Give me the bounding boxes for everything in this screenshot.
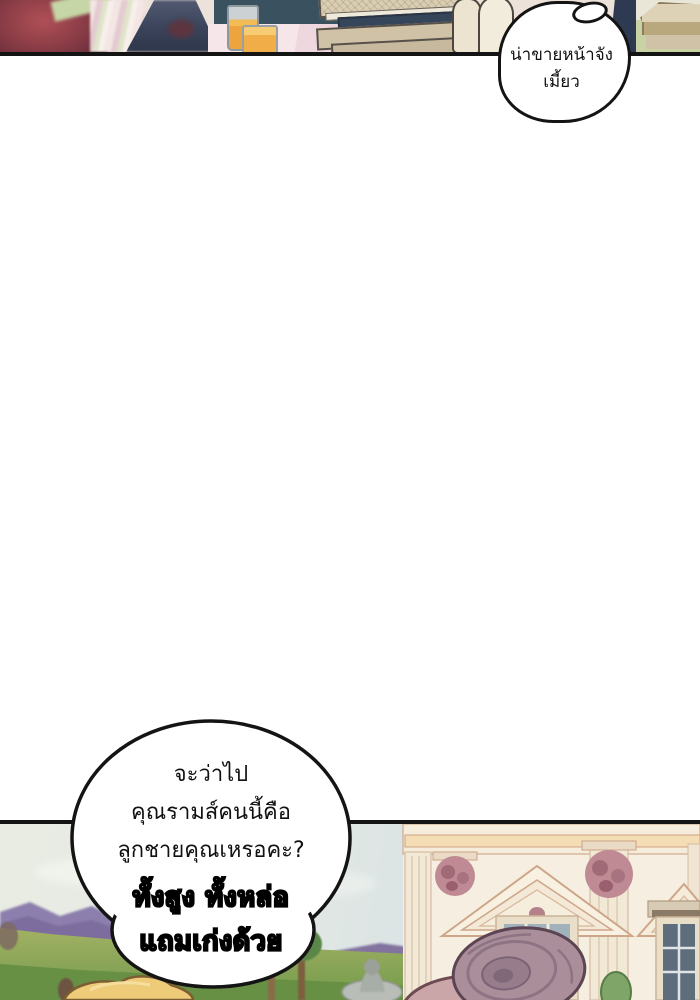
window-right — [648, 901, 700, 1000]
speech-text-line-bold: แถมเก่งด้วย — [72, 920, 350, 964]
figure-detail-patch — [168, 20, 194, 38]
webtoon-page: น่าขายหน้าจัง เมี้ยว — [0, 0, 700, 1000]
speech-bubble-bottom-text: จะว่าไป คุณรามส์คนนี้คือ ลูกชายคุณเหรอคะ… — [72, 756, 350, 964]
gift-box-base — [646, 35, 700, 49]
speech-text-line: เมี้ยว — [496, 69, 627, 96]
speech-text-line: น่าขายหน้าจัง — [496, 42, 627, 69]
speech-text-line-bold: ทั้งสูง ทั้งหล่อ — [72, 876, 350, 920]
speech-text-line: คุณรามส์คนนี้คือ — [72, 794, 350, 832]
speech-bubble-top-text: น่าขายหน้าจัง เมี้ยว — [496, 42, 627, 96]
speech-text-line: จะว่าไป — [72, 756, 350, 794]
topiary — [601, 972, 631, 1000]
juice-glass — [242, 25, 278, 56]
gift-box-band — [642, 22, 700, 35]
speech-text-line: ลูกชายคุณเหรอคะ? — [72, 832, 350, 870]
pilaster-left — [405, 852, 431, 1000]
